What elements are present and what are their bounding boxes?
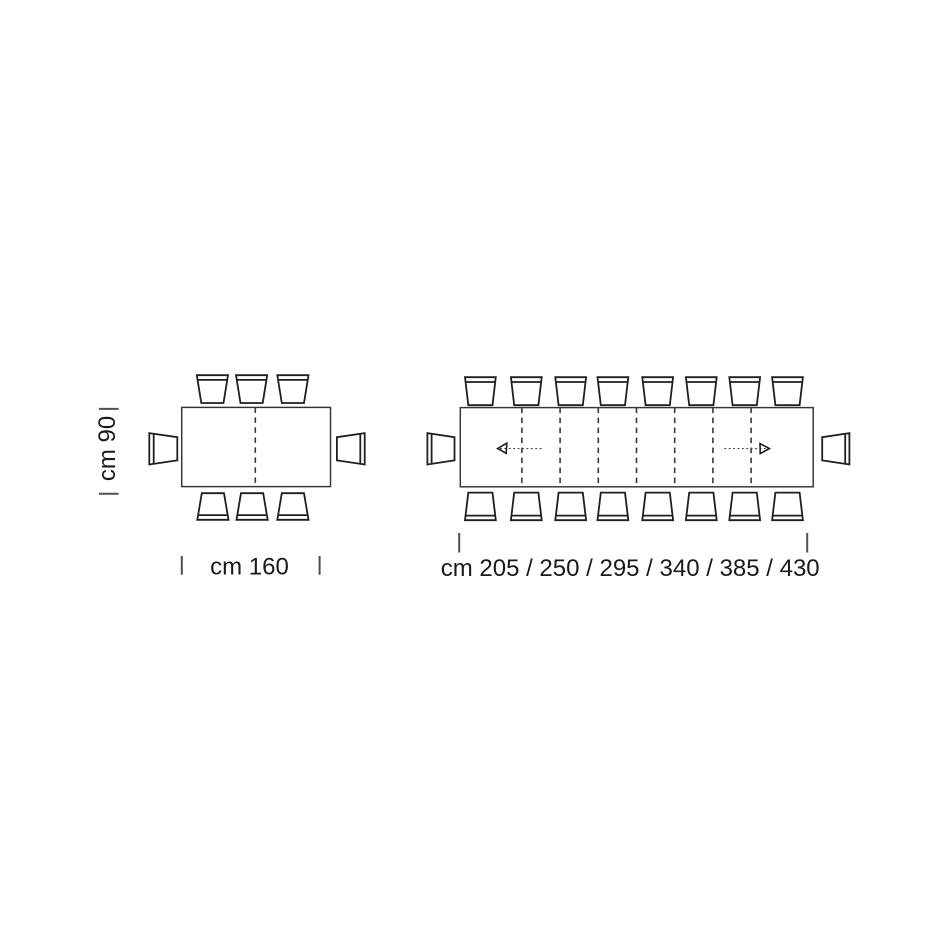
svg-text:cm 160: cm 160 [210,553,289,580]
svg-text:cm 205 / 250 / 295 / 340 / 385: cm 205 / 250 / 295 / 340 / 385 / 430 [441,555,820,582]
svg-text:cm 90: cm 90 [94,416,121,481]
